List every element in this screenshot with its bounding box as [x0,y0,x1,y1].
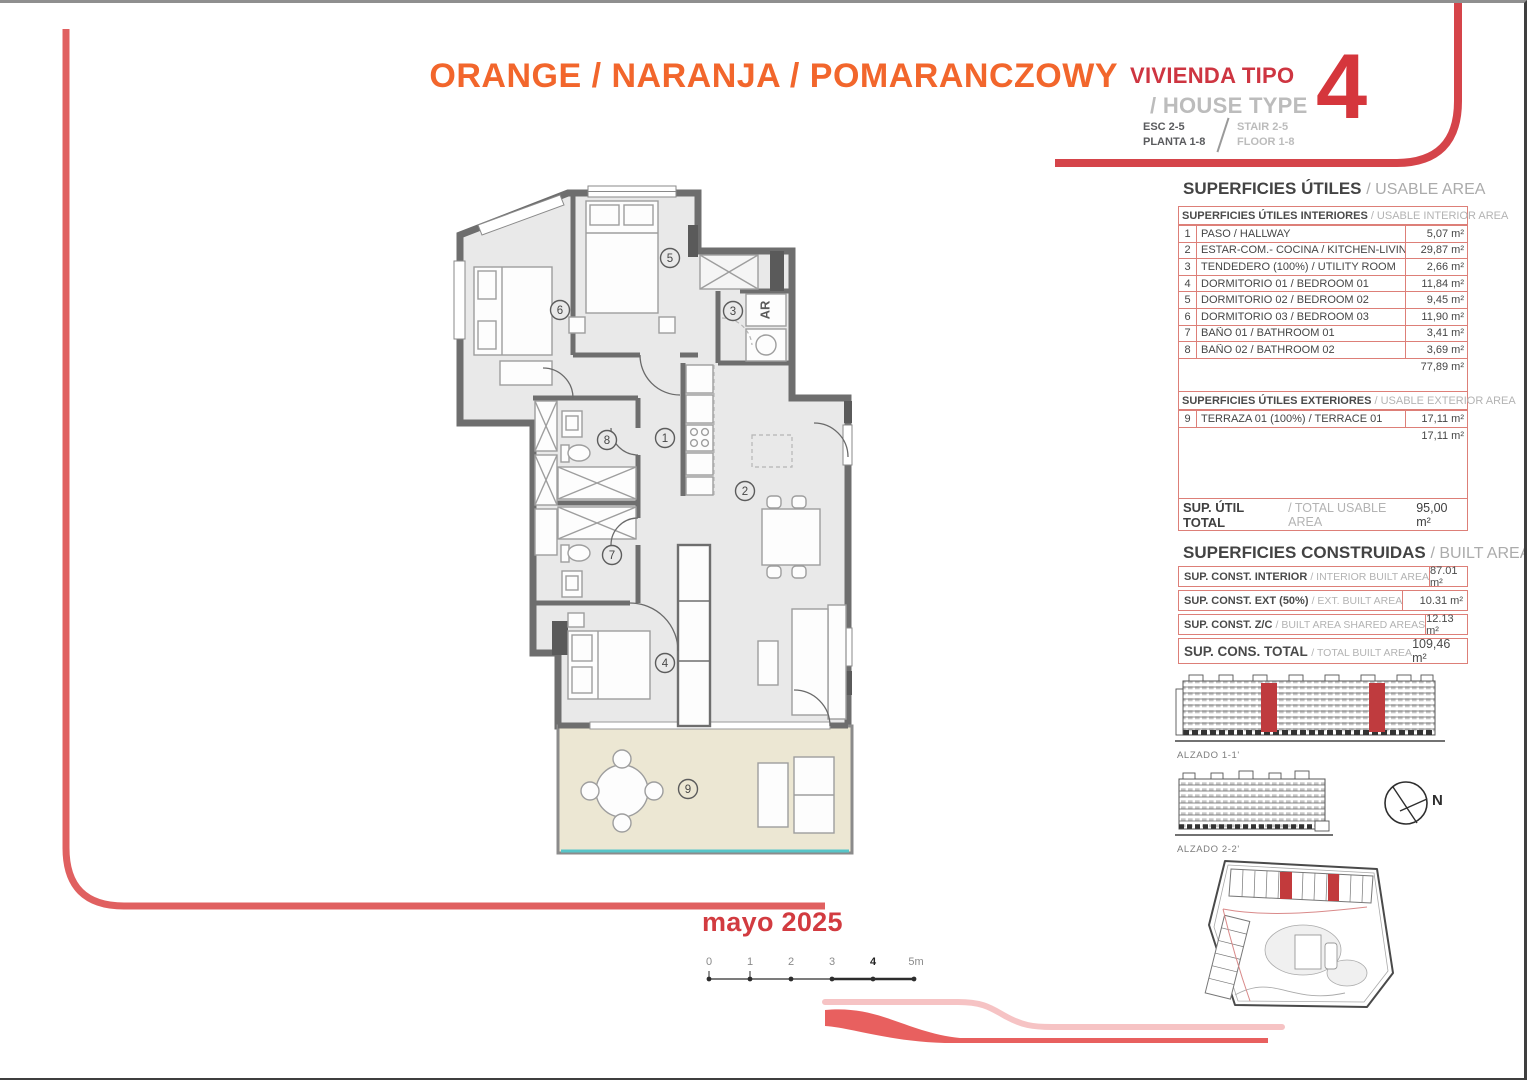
svg-text:3: 3 [730,306,736,318]
row-num: 6 [1179,309,1197,325]
svg-text:4: 4 [662,658,669,670]
built-area-heading: SUPERFICIES CONSTRUIDAS / BUILT AREA [1183,543,1527,563]
table-row: 6DORMITORIO 03 / BEDROOM 0311,90 m² [1179,308,1467,325]
compass-n-label: N [1432,792,1443,809]
row-label: DORMITORIO 02 / BEDROOM 02 [1197,294,1405,306]
svg-text:7: 7 [609,550,615,562]
usable-area-heading-es: SUPERFICIES ÚTILES [1183,179,1362,198]
built-area-heading-es: SUPERFICIES CONSTRUIDAS [1183,543,1426,562]
floor-en: FLOOR 1-8 [1237,135,1294,150]
scale-tick-highlighted: 4 [870,956,877,968]
row-value: 9,45 m² [1405,292,1467,308]
row-num: 2 [1179,243,1197,259]
plan-sheet: ORANGE / NARANJA / POMARANCZOWY VIVIENDA… [0,0,1527,1080]
highlighted-unit [1280,872,1292,899]
built-area-heading-en: / BUILT AREA [1430,545,1527,562]
row-num: 7 [1179,326,1197,342]
room-number-5: 5 [661,249,680,268]
table-row: 5DORMITORIO 02 / BEDROOM 029,45 m² [1179,291,1467,308]
row-label: BAÑO 01 / BATHROOM 01 [1197,327,1405,339]
table-row: 4DORMITORIO 01 / BEDROOM 0111,84 m² [1179,275,1467,292]
table-row: 2ESTAR-COM.- COCINA / KITCHEN-LIVING29,8… [1179,242,1467,259]
house-type-label-en: / HOUSE TYPE [1150,93,1308,119]
svg-text:2: 2 [742,486,748,498]
usable-interior-subtotal: 77,89 m² [1179,358,1467,376]
built-total-label-es: SUP. CONS. TOTAL [1184,644,1308,659]
built-row-value: 10.31 m² [1402,591,1467,610]
roof-bumps [1189,675,1433,681]
scale-tick: 3 [829,956,835,968]
row-label: BAÑO 02 / BATHROOM 02 [1197,344,1405,356]
highlighted-unit-column [1261,683,1277,732]
room-number-6: 6 [551,301,570,320]
svg-text:1: 1 [662,433,668,445]
usable-area-heading-en: / USABLE AREA [1366,181,1485,198]
row-label: TERRAZA 01 (100%) / TERRACE 01 [1197,413,1405,425]
row-num: 3 [1179,259,1197,275]
usable-exterior-header-en: / USABLE EXTERIOR AREA [1374,395,1515,407]
table-row: 1PASO / HALLWAY5,07 m² [1179,225,1467,242]
built-row-label-es: SUP. CONST. Z/C [1184,619,1272,631]
room-number-1: 1 [656,429,675,448]
scale-tick: 2 [788,956,794,968]
row-value: 5,07 m² [1405,226,1467,242]
usable-exterior-subtotal: 17,11 m² [1179,427,1467,445]
row-value: 3,41 m² [1405,326,1467,342]
row-value: 11,84 m² [1405,276,1467,292]
row-value: 17,11 m² [1405,411,1467,427]
floor-plan: AR 1 2 3 4 5 6 7 8 9 [440,173,920,863]
usable-area-heading: SUPERFICIES ÚTILES / USABLE AREA [1183,179,1485,199]
built-total-row: SUP. CONS. TOTAL / TOTAL BUILT AREA 109,… [1178,638,1468,664]
elevation-1-label: ALZADO 1-1' [1177,750,1240,761]
row-num: 8 [1179,342,1197,358]
room-number-7: 7 [603,546,622,565]
built-row-value: 87.01 m² [1429,567,1467,586]
row-label: PASO / HALLWAY [1197,228,1405,240]
elevation-1-drawing [1173,667,1447,747]
room-number-3: 3 [724,302,743,321]
usable-interior-table: SUPERFICIES ÚTILES INTERIORES / USABLE I… [1178,206,1468,392]
scale-tick: 5m [908,956,923,968]
built-row: SUP. CONST. EXT (50%) / EXT. BUILT AREA … [1178,590,1468,611]
stair-es: ESC 2-5 [1143,120,1205,135]
row-label: TENDEDERO (100%) / UTILITY ROOM [1197,261,1405,273]
highlighted-unit-column [1369,683,1385,732]
built-row-label-en: / BUILT AREA SHARED AREAS [1276,619,1426,631]
built-area-table: SUP. CONST. INTERIOR / INTERIOR BUILT AR… [1178,566,1468,667]
built-row-label-en: / INTERIOR BUILT AREA [1310,571,1429,583]
usable-interior-header-en: / USABLE INTERIOR AREA [1371,210,1509,222]
built-total-value: 109,46 m² [1412,639,1467,663]
decorative-ribbons [810,978,1527,1073]
room-number-8: 8 [598,431,617,450]
row-value: 11,90 m² [1405,309,1467,325]
built-total-label-en: / TOTAL BUILT AREA [1311,647,1412,659]
table-row: 7BAÑO 01 / BATHROOM 013,41 m² [1179,325,1467,342]
svg-text:9: 9 [685,784,691,796]
north-compass: N [1378,773,1448,833]
floor-es: PLANTA 1-8 [1143,135,1205,150]
usable-total-label-es: SUP. ÚTIL TOTAL [1183,500,1284,530]
usable-total-label-en: / TOTAL USABLE AREA [1288,501,1416,529]
house-type-label-es: VIVIENDA TIPO [1130,63,1294,89]
table-row: 9TERRAZA 01 (100%) / TERRACE 0117,11 m² [1179,410,1467,427]
row-value: 2,66 m² [1405,259,1467,275]
highlighted-unit [1328,874,1339,901]
built-row: SUP. CONST. INTERIOR / INTERIOR BUILT AR… [1178,566,1468,587]
built-row: SUP. CONST. Z/C / BUILT AREA SHARED AREA… [1178,614,1468,635]
usable-exterior-table: SUPERFICIES ÚTILES EXTERIORES / USABLE E… [1178,391,1468,499]
row-num: 5 [1179,292,1197,308]
page-title: ORANGE / NARANJA / POMARANCZOWY [420,57,1118,96]
built-row-value: 12.13 m² [1425,615,1467,634]
table-row: 3TENDEDERO (100%) / UTILITY ROOM2,66 m² [1179,258,1467,275]
stair-en: STAIR 2-5 [1237,120,1294,135]
date-label: mayo 2025 [702,907,843,938]
row-num: 4 [1179,276,1197,292]
usable-exterior-header-es: SUPERFICIES ÚTILES EXTERIORES [1182,395,1371,407]
elevation-2-drawing [1173,763,1335,841]
row-num: 1 [1179,226,1197,242]
elevation-2-label: ALZADO 2-2' [1177,844,1240,855]
room-number-4: 4 [656,654,675,673]
row-num: 9 [1179,411,1197,427]
house-type-number: 4 [1316,41,1367,133]
scale-tick: 0 [706,956,712,968]
usable-total-value: 95,00 m² [1416,501,1463,529]
stair-floor-es: ESC 2-5 PLANTA 1-8 [1143,120,1205,150]
usable-interior-header-es: SUPERFICIES ÚTILES INTERIORES [1182,210,1368,222]
built-row-label-es: SUP. CONST. EXT (50%) [1184,595,1309,607]
stair-floor-en: STAIR 2-5 FLOOR 1-8 [1237,120,1294,150]
built-row-label-en: / EXT. BUILT AREA [1312,595,1403,607]
usable-exterior-header: SUPERFICIES ÚTILES EXTERIORES / USABLE E… [1179,392,1467,410]
svg-text:6: 6 [557,305,563,317]
row-label: DORMITORIO 01 / BEDROOM 01 [1197,278,1405,290]
ar-label: AR [757,300,772,319]
built-row-label-es: SUP. CONST. INTERIOR [1184,571,1307,583]
usable-total-row: SUP. ÚTIL TOTAL / TOTAL USABLE AREA 95,0… [1178,498,1468,531]
table-row: 8BAÑO 02 / BATHROOM 023,69 m² [1179,341,1467,358]
scale-tick: 1 [747,956,753,968]
row-label: ESTAR-COM.- COCINA / KITCHEN-LIVING [1197,244,1405,256]
row-value: 3,69 m² [1405,342,1467,358]
svg-text:5: 5 [667,253,673,265]
row-label: DORMITORIO 03 / BEDROOM 03 [1197,311,1405,323]
usable-interior-header: SUPERFICIES ÚTILES INTERIORES / USABLE I… [1179,207,1467,225]
svg-text:8: 8 [604,435,610,447]
row-value: 29,87 m² [1405,243,1467,259]
room-number-9: 9 [679,780,698,799]
room-number-2: 2 [736,482,755,501]
